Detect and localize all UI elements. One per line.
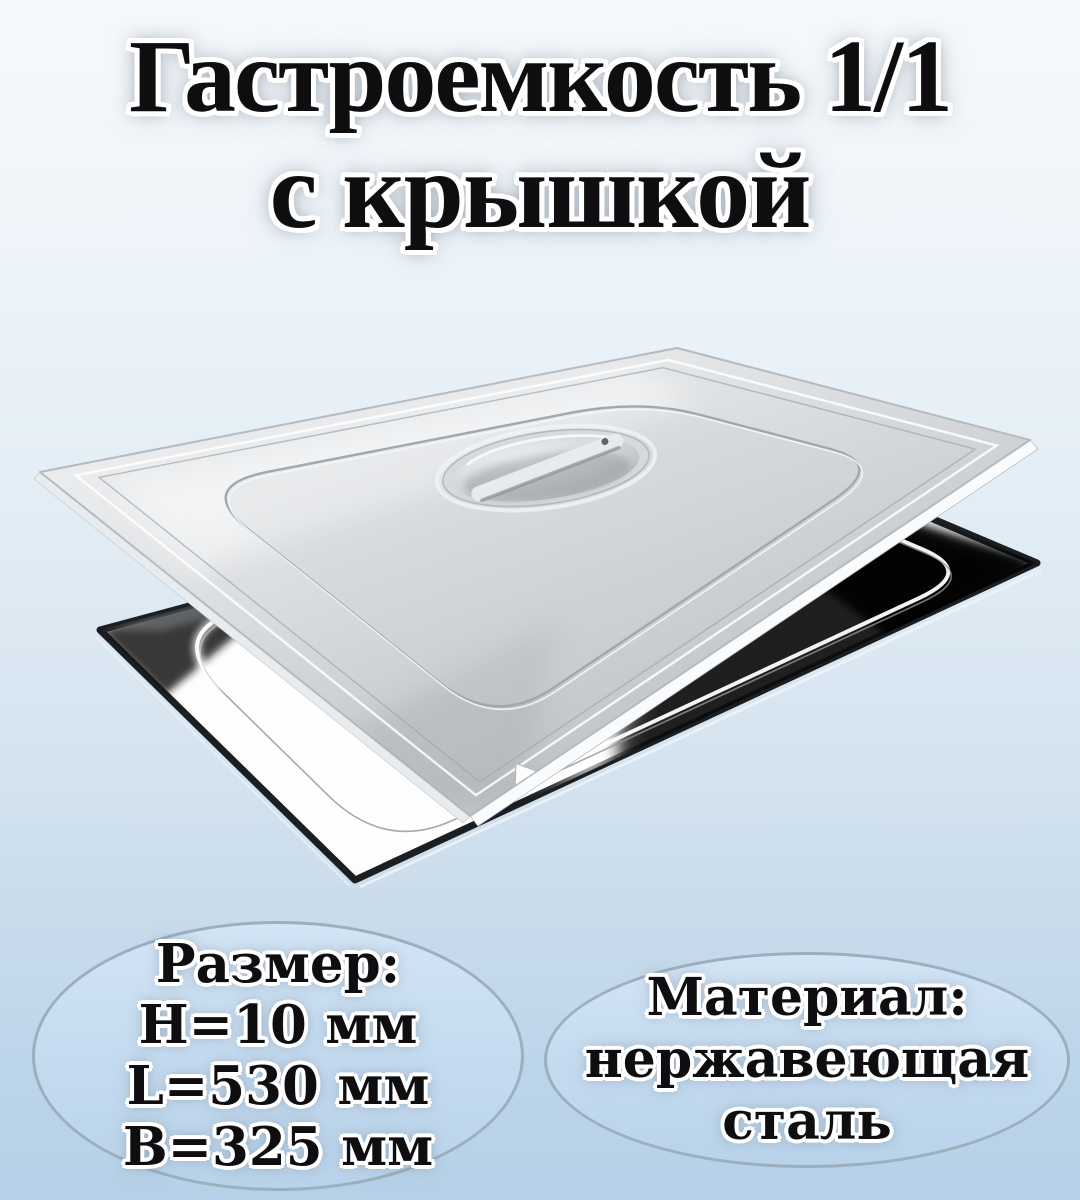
size-badge-length: L=530 мм (127, 1056, 430, 1117)
size-badge-height: H=10 мм (139, 995, 418, 1056)
product-image (0, 300, 1080, 920)
product-title-line2: с крышкой (0, 136, 1080, 248)
material-badge-line1: нержавеющая (585, 1029, 1030, 1091)
size-badge: Размер: H=10 мм L=530 мм B=325 мм (32, 921, 524, 1191)
product-title: Гастроемкость 1/1 с крышкой (0, 18, 1080, 248)
page-background: Гастроемкость 1/1 с крышкой (0, 0, 1080, 1200)
material-badge: Материал: нержавеющая сталь (544, 952, 1070, 1168)
material-badge-heading: Материал: (646, 967, 967, 1029)
size-badge-heading: Размер: (156, 934, 400, 995)
size-badge-width: B=325 мм (123, 1117, 433, 1178)
material-badge-line2: сталь (722, 1091, 892, 1153)
product-title-line1: Гастроемкость 1/1 (0, 18, 1080, 136)
